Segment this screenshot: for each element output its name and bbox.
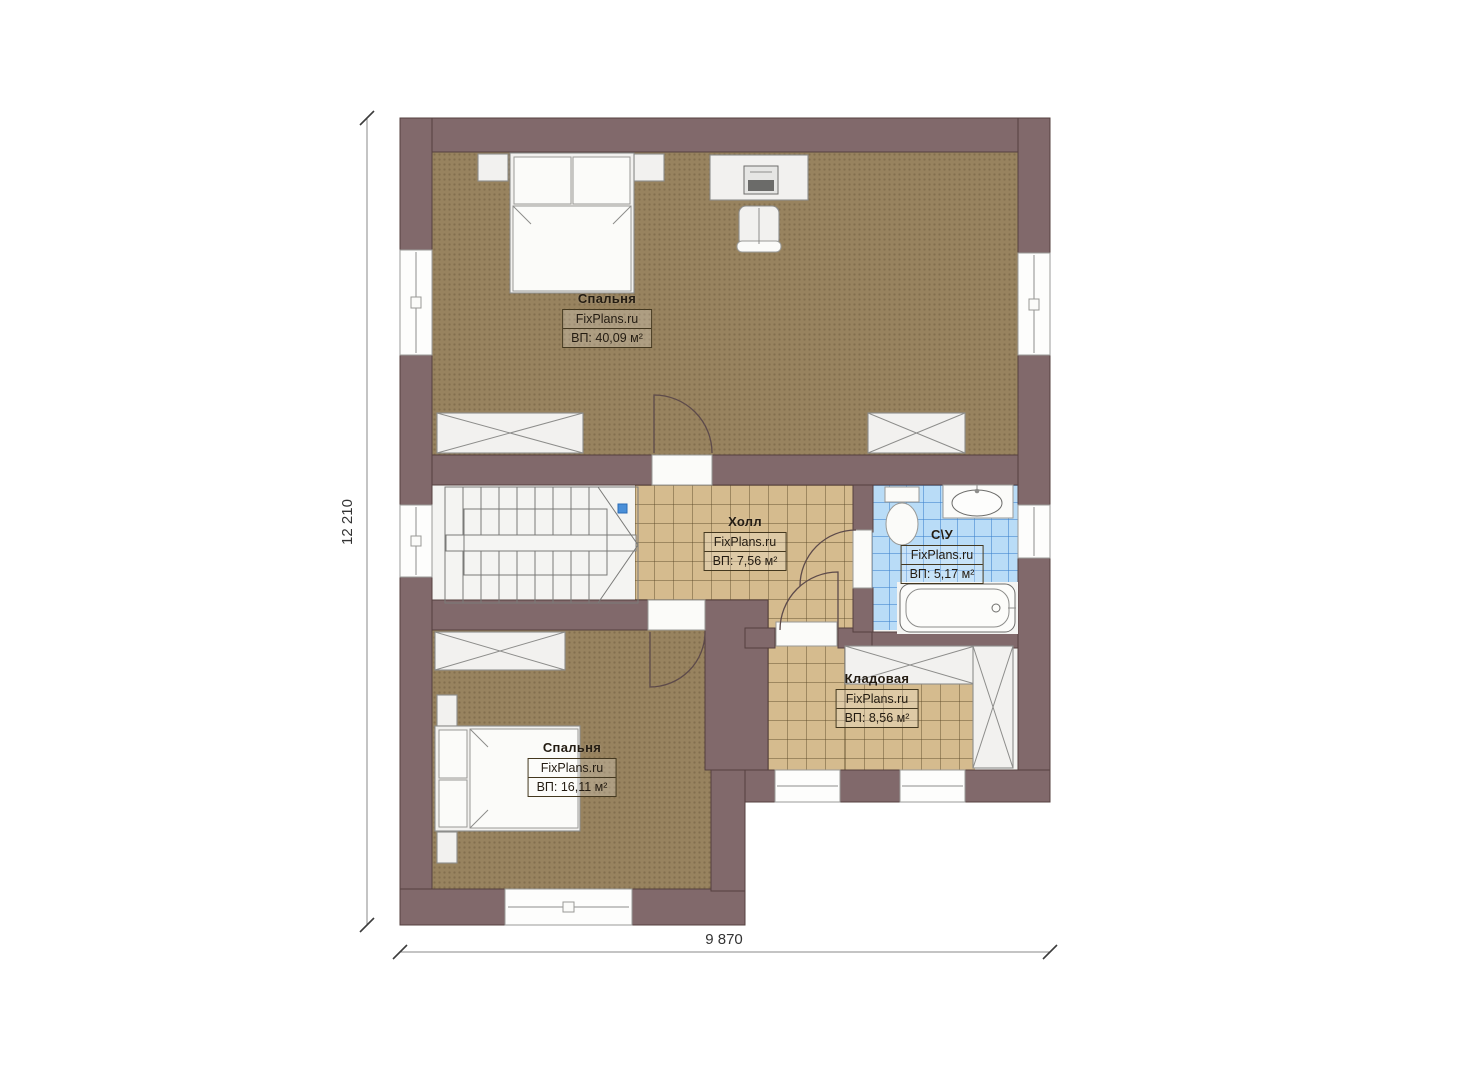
room-area: ВП: 40,09 м²	[563, 328, 651, 347]
wall-bedroom2-right	[705, 600, 768, 770]
room-area: ВП: 5,17 м²	[902, 564, 983, 583]
dim-height-label: 12 210	[339, 499, 356, 545]
wall-step	[711, 770, 745, 891]
wall-mid-left	[432, 455, 652, 485]
room-label-storage: Кладовая FixPlans.ru ВП: 8,56 м²	[836, 671, 919, 728]
room-info-box: FixPlans.ru ВП: 16,11 м²	[528, 758, 617, 797]
watermark-text: FixPlans.ru	[705, 533, 786, 551]
pillow	[439, 730, 467, 778]
printer-tray	[748, 180, 774, 191]
room-area: ВП: 8,56 м²	[837, 708, 918, 727]
wall-right	[1018, 118, 1050, 802]
window-bedroom-bottom	[505, 889, 632, 925]
room-label-bedroom-top: Спальня FixPlans.ru ВП: 40,09 м²	[562, 291, 652, 348]
nightstand-right	[634, 154, 664, 181]
watermark-text: FixPlans.ru	[563, 310, 651, 328]
room-name: Холл	[704, 514, 787, 529]
room-info-box: FixPlans.ru ВП: 8,56 м²	[836, 689, 919, 728]
room-name: С\У	[901, 527, 984, 542]
room-label-bedroom-bottom: Спальня FixPlans.ru ВП: 16,11 м²	[528, 740, 617, 797]
watermark-text: FixPlans.ru	[837, 690, 918, 708]
staircase	[445, 487, 638, 603]
door-hall-storage	[776, 572, 838, 646]
room-info-box: FixPlans.ru ВП: 40,09 м²	[562, 309, 652, 348]
dim-width-label: 9 870	[705, 931, 743, 948]
wardrobe-storage-right	[973, 646, 1013, 768]
floor-plan-page: { "plan": { "type": "floor-plan", "water…	[0, 0, 1474, 1080]
room-label-bathroom: С\У FixPlans.ru ВП: 5,17 м²	[901, 527, 984, 584]
room-label-hall: Холл FixPlans.ru ВП: 7,56 м²	[704, 514, 787, 571]
nightstand-left	[478, 154, 508, 181]
window-bathroom-right	[1018, 505, 1050, 558]
pillow	[439, 780, 467, 827]
stair-marker	[618, 504, 627, 513]
wall-lower-left	[432, 600, 648, 630]
room-area: ВП: 16,11 м²	[529, 777, 616, 796]
pillow	[573, 157, 630, 204]
wall-mid-right	[712, 455, 1018, 485]
window-bedroom-top-left	[400, 250, 432, 355]
wall-hall-bottom-a	[745, 628, 775, 648]
window-stairs-left	[400, 505, 432, 577]
desk	[710, 155, 808, 200]
blanket	[513, 206, 631, 291]
watermark-text: FixPlans.ru	[529, 759, 616, 777]
room-area: ВП: 7,56 м²	[705, 551, 786, 570]
room-name: Кладовая	[836, 671, 919, 686]
watermark-text: FixPlans.ru	[902, 546, 983, 564]
wardrobe-bedroom-bottom	[435, 632, 565, 670]
bed-double-top	[478, 153, 664, 293]
door-bedroom-bottom	[648, 600, 705, 687]
wall-top	[400, 118, 1050, 152]
room-info-box: FixPlans.ru ВП: 5,17 м²	[901, 545, 984, 584]
nightstand-top	[437, 695, 457, 726]
chair	[737, 206, 781, 252]
room-name: Спальня	[562, 291, 652, 306]
wall-hall-bath-top	[853, 485, 873, 532]
wardrobe-bedroom-top-right	[868, 413, 965, 453]
sink	[943, 485, 1013, 518]
window-bedroom-top-right	[1018, 253, 1050, 355]
wall-hall-bath-bottom	[853, 588, 873, 632]
door-bedroom-top	[652, 395, 712, 485]
room-info-box: FixPlans.ru ВП: 7,56 м²	[704, 532, 787, 571]
room-name: Спальня	[528, 740, 617, 755]
window-storage-1	[775, 770, 840, 802]
window-storage-2	[900, 770, 965, 802]
wardrobe-bedroom-top-left	[437, 413, 583, 453]
nightstand-bottom	[437, 832, 457, 863]
bathtub	[897, 582, 1018, 634]
pillow	[514, 157, 571, 204]
